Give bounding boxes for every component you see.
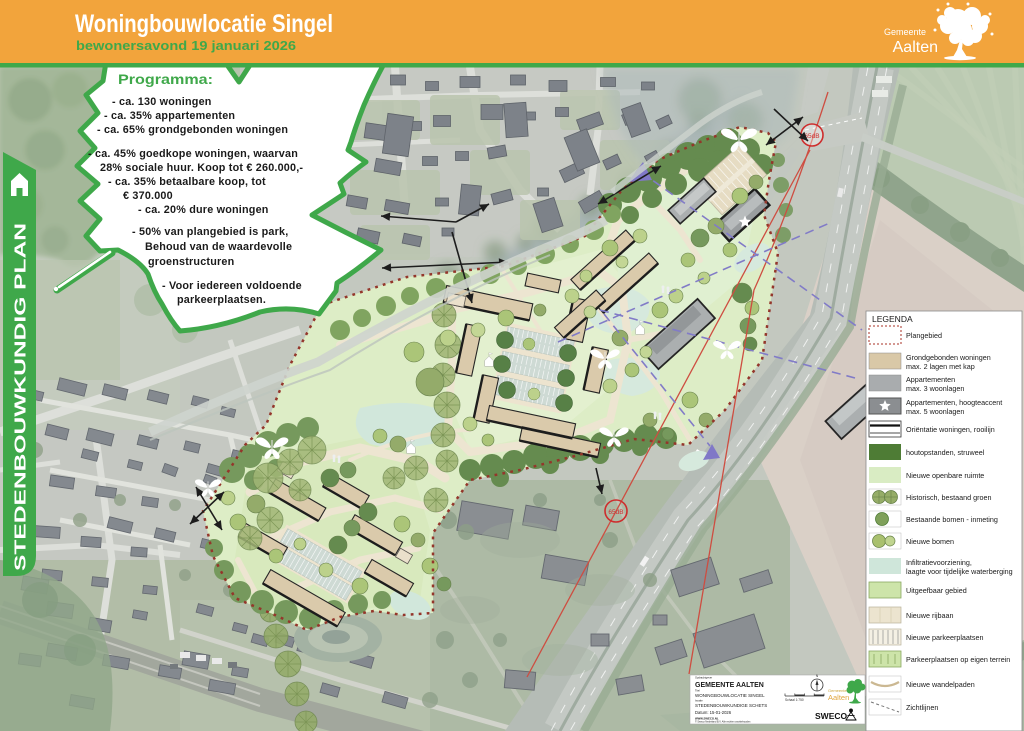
svg-text:- Voor iedereen voldoende: - Voor iedereen voldoende	[162, 280, 302, 292]
svg-text:Uitgeefbaar gebied: Uitgeefbaar gebied	[906, 586, 967, 595]
svg-text:Woningbouwlocatie Singel: Woningbouwlocatie Singel	[75, 10, 333, 38]
svg-text:Titel: Titel	[695, 689, 700, 693]
svg-text:bewonersavond 19 januari 2026: bewonersavond 19 januari 2026	[76, 39, 296, 53]
svg-text:Infiltratievoorziening,: Infiltratievoorziening,	[906, 558, 972, 567]
svg-text:- 50% van plangebied is park,: - 50% van plangebied is park,	[132, 226, 288, 238]
svg-text:Historisch, bestaand groen: Historisch, bestaand groen	[906, 493, 992, 502]
svg-text:max. 3 woonlagen: max. 3 woonlagen	[906, 384, 964, 393]
svg-text:Oriëntatie woningen, rooilijn: Oriëntatie woningen, rooilijn	[906, 425, 995, 434]
svg-text:STEDENBOUWKUNDIGE SCHETS: STEDENBOUWKUNDIGE SCHETS	[695, 703, 767, 708]
svg-text:- ca. 35% betaalbare koop, tot: - ca. 35% betaalbare koop, tot	[108, 176, 266, 188]
svg-text:groenstructuren: groenstructuren	[148, 256, 234, 268]
svg-text:laagte voor tijdelijke waterbe: laagte voor tijdelijke waterberging	[906, 567, 1013, 576]
svg-text:- ca. 35% appartementen: - ca. 35% appartementen	[104, 110, 235, 122]
svg-text:Schaal 1:750: Schaal 1:750	[785, 698, 804, 702]
svg-text:GEMEENTE AALTEN: GEMEENTE AALTEN	[695, 682, 764, 689]
svg-text:Aalten: Aalten	[828, 693, 849, 702]
svg-text:- ca. 130 woningen: - ca. 130 woningen	[112, 96, 212, 108]
svg-text:max. 5 woonlagen: max. 5 woonlagen	[906, 407, 964, 416]
svg-text:Programma:: Programma:	[118, 71, 213, 87]
svg-text:SWECO: SWECO	[815, 711, 848, 721]
svg-text:Nieuwe bomen: Nieuwe bomen	[906, 537, 954, 546]
svg-text:- ca. 65% grondgebonden woning: - ca. 65% grondgebonden woningen	[97, 124, 288, 136]
svg-text:Gemeente: Gemeente	[884, 27, 926, 37]
svg-text:Bestaande bomen - inmeting: Bestaande bomen - inmeting	[906, 515, 998, 524]
svg-text:- ca. 20% dure woningen: - ca. 20% dure woningen	[138, 204, 269, 216]
svg-text:© Sweco Nederland B.V. Alle r: © Sweco Nederland B.V. Alle rechten voor…	[695, 721, 751, 724]
svg-text:houtopstanden, struweel: houtopstanden, struweel	[906, 448, 985, 457]
svg-text:Zichtlijnen: Zichtlijnen	[906, 703, 938, 712]
svg-text:STEDENBOUWKUNDIG PLAN: STEDENBOUWKUNDIG PLAN	[13, 223, 30, 571]
svg-text:Parkeerplaatsen op eigen terre: Parkeerplaatsen op eigen terrein	[906, 655, 1010, 664]
svg-text:Grondgebonden woningen: Grondgebonden woningen	[906, 353, 991, 362]
svg-text:28% sociale huur. Koop tot € 2: 28% sociale huur. Koop tot € 260.000,-	[100, 162, 303, 174]
svg-text:- ca. 45% goedkope woningen, w: - ca. 45% goedkope woningen, waarvan	[88, 148, 298, 160]
svg-text:Nieuwe openbare ruimte: Nieuwe openbare ruimte	[906, 471, 984, 480]
svg-text:Nieuwe parkeerplaatsen: Nieuwe parkeerplaatsen	[906, 633, 984, 642]
svg-text:Appartementen, hoogteaccent: Appartementen, hoogteaccent	[906, 398, 1002, 407]
svg-text:Aalten: Aalten	[893, 39, 938, 56]
svg-text:€ 370.000: € 370.000	[123, 190, 173, 202]
svg-text:max. 2 lagen met kap: max. 2 lagen met kap	[906, 362, 975, 371]
svg-text:LEGENDA: LEGENDA	[872, 314, 913, 324]
svg-text:Inzake: Inzake	[695, 699, 703, 703]
svg-text:Nieuwe rijbaan: Nieuwe rijbaan	[906, 611, 954, 620]
svg-text:WONINGBOUWLOCATIE SINGEL: WONINGBOUWLOCATIE SINGEL	[695, 693, 765, 698]
svg-text:Plangebied: Plangebied	[906, 331, 942, 340]
svg-text:parkeerplaatsen.: parkeerplaatsen.	[177, 294, 266, 306]
svg-text:Nieuwe wandelpaden: Nieuwe wandelpaden	[906, 680, 975, 689]
svg-text:Opdrachtgever: Opdrachtgever	[695, 676, 712, 680]
svg-text:Appartementen: Appartementen	[906, 375, 955, 384]
svg-text:Behoud van de waardevolle: Behoud van de waardevolle	[145, 241, 292, 253]
svg-text:Datum: 15-01-2026: Datum: 15-01-2026	[695, 710, 732, 715]
